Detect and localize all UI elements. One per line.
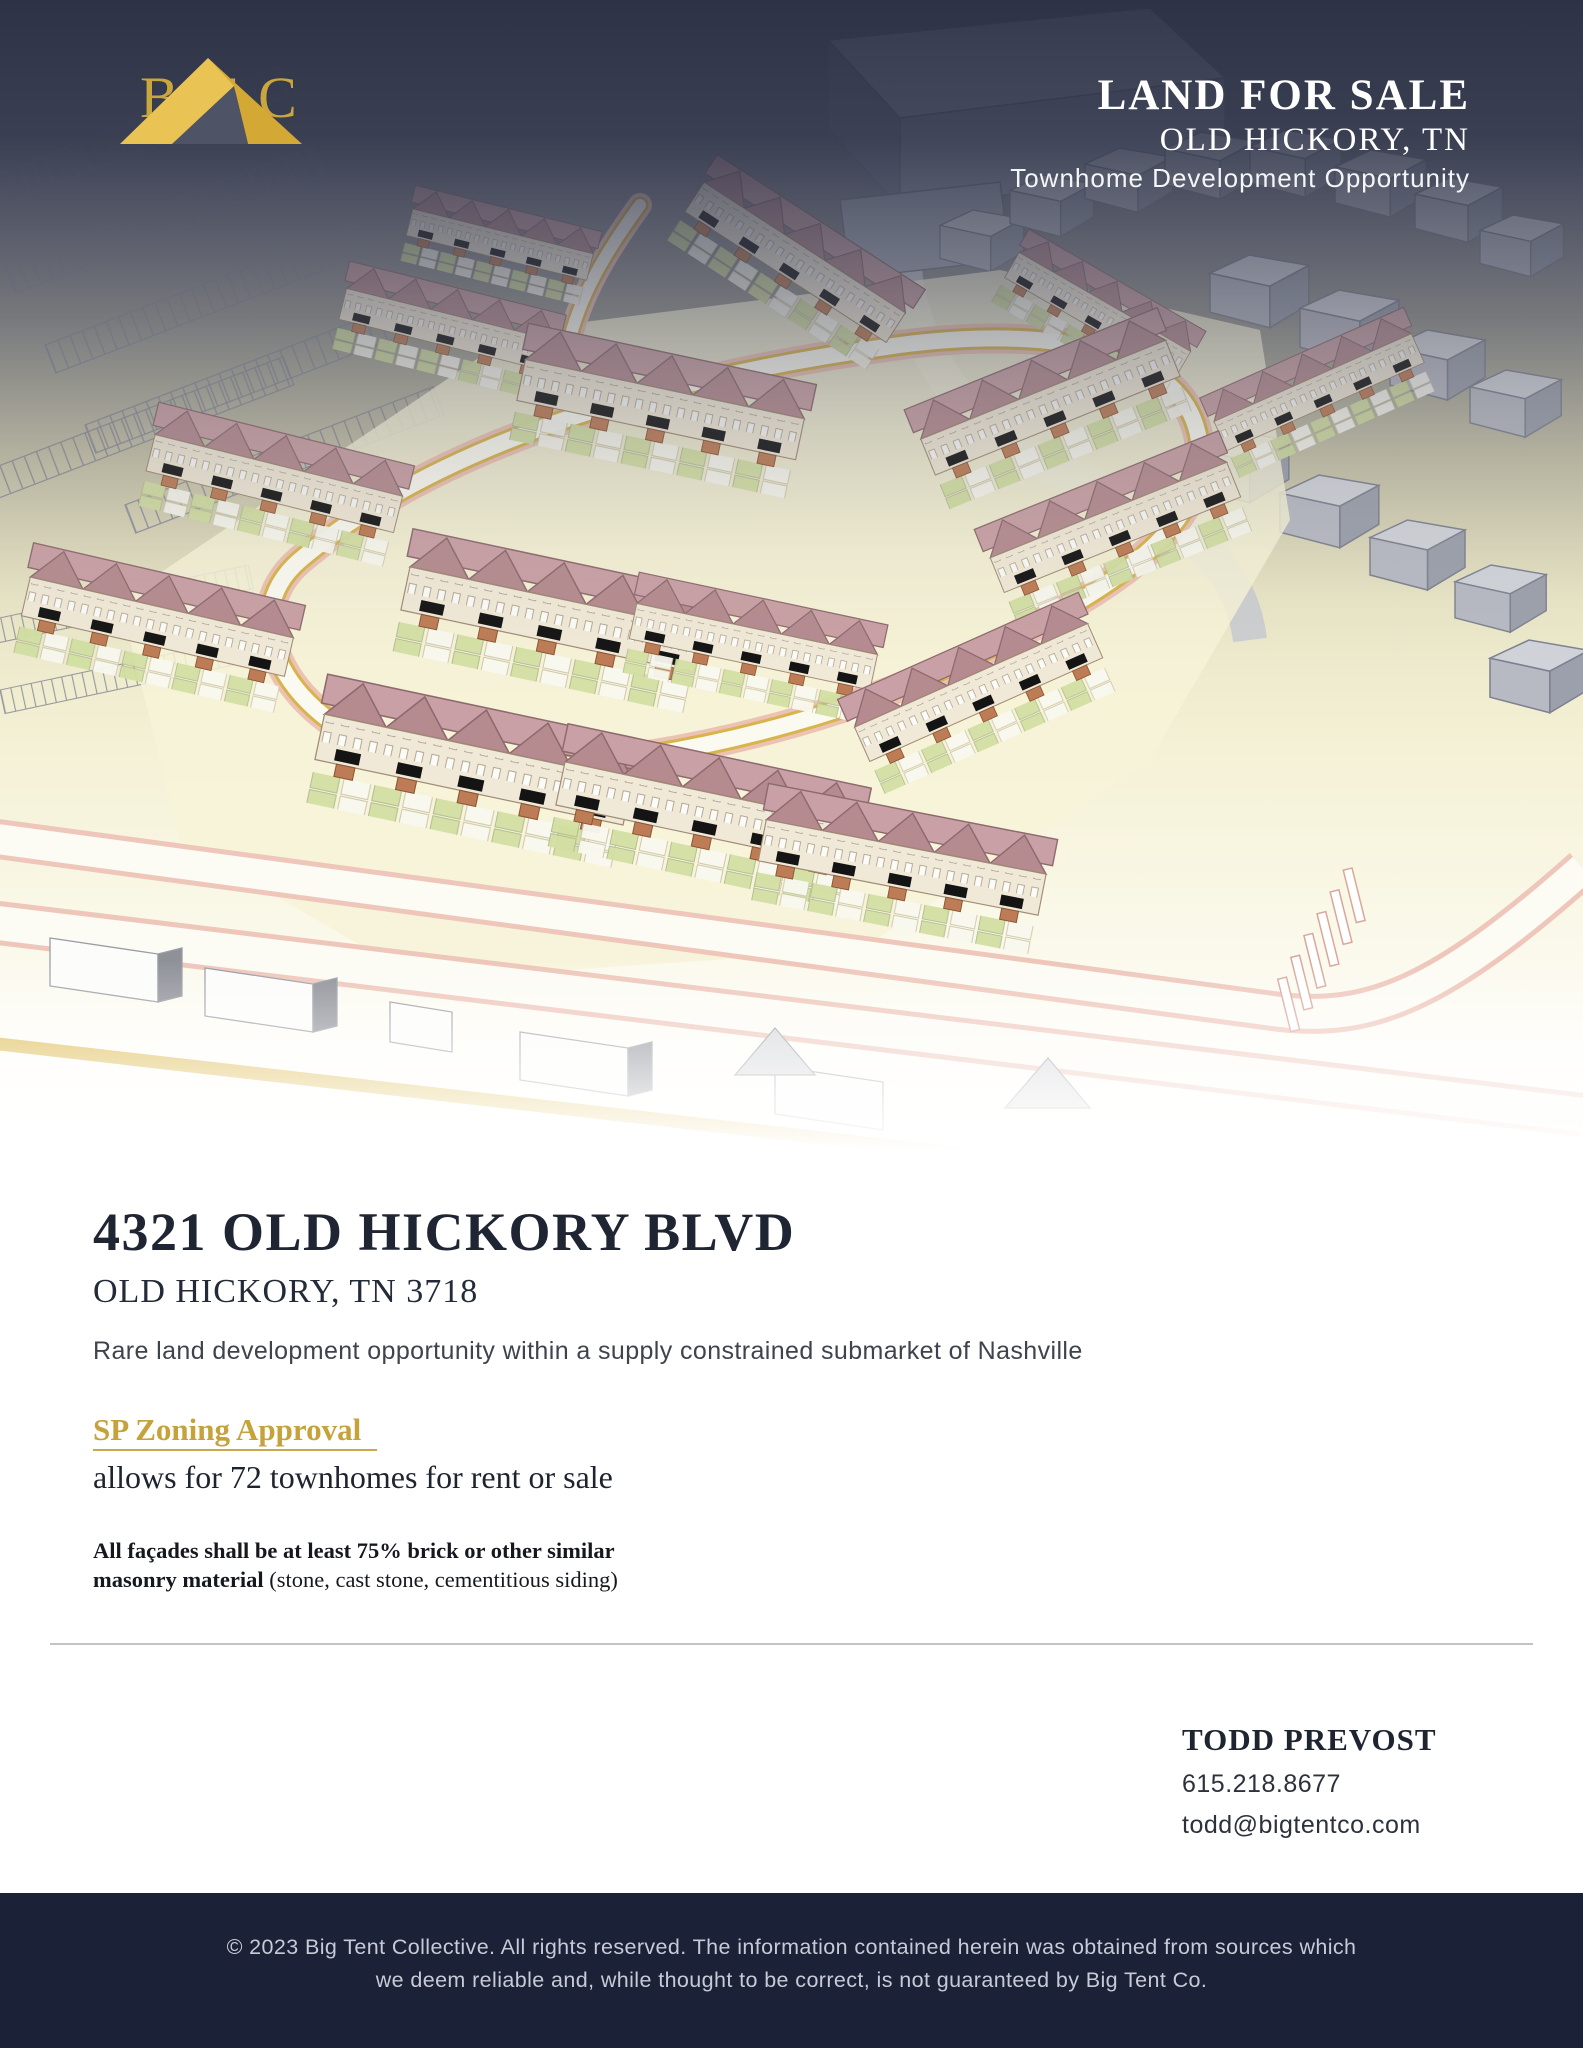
footer-bar: © 2023 Big Tent Collective. All rights r… — [0, 1893, 1583, 2048]
property-description: Rare land development opportunity within… — [93, 1337, 1083, 1366]
zoning-approval-link[interactable]: SP Zoning Approval — [93, 1412, 377, 1451]
hero-title: LAND FOR SALE — [1010, 72, 1470, 120]
hero-headline-block: LAND FOR SALE OLD HICKORY, TN Townhome D… — [1010, 72, 1470, 196]
property-address: 4321 OLD HICKORY BLVD — [93, 1203, 1083, 1261]
section-divider — [50, 1643, 1533, 1645]
hero-location: OLD HICKORY, TN — [1010, 120, 1470, 160]
zoning-approval-row: SP Zoning Approval — [93, 1412, 1083, 1451]
hero-section: BTC LAND FOR SALE OLD HICKORY, TN Townho… — [0, 0, 1583, 1150]
facade-requirement-note: (stone, cast stone, cementitious siding) — [269, 1567, 618, 1592]
facade-requirement: All façades shall be at least 75% brick … — [93, 1536, 621, 1594]
contact-email[interactable]: todd@bigtentco.com — [1182, 1811, 1437, 1840]
contact-phone[interactable]: 615.218.8677 — [1182, 1770, 1437, 1799]
contact-block: TODD PREVOST 615.218.8677 todd@bigtentco… — [1182, 1722, 1437, 1840]
footer-line1: © 2023 Big Tent Collective. All rights r… — [0, 1931, 1583, 1964]
hero-subtitle: Townhome Development Opportunity — [1010, 160, 1470, 196]
property-details: 4321 OLD HICKORY BLVD OLD HICKORY, TN 37… — [93, 1203, 1083, 1594]
footer-line2: we deem reliable and, while thought to b… — [0, 1964, 1583, 1997]
property-city-state-zip: OLD HICKORY, TN 3718 — [93, 1273, 1083, 1311]
bottom-white-fade — [0, 960, 1583, 1150]
brand-logo: BTC — [118, 56, 304, 131]
flyer-page: BTC LAND FOR SALE OLD HICKORY, TN Townho… — [0, 0, 1583, 2048]
contact-name: TODD PREVOST — [1182, 1722, 1437, 1758]
zoning-detail: allows for 72 townhomes for rent or sale — [93, 1459, 1083, 1496]
btc-tent-logo-icon — [118, 56, 304, 146]
